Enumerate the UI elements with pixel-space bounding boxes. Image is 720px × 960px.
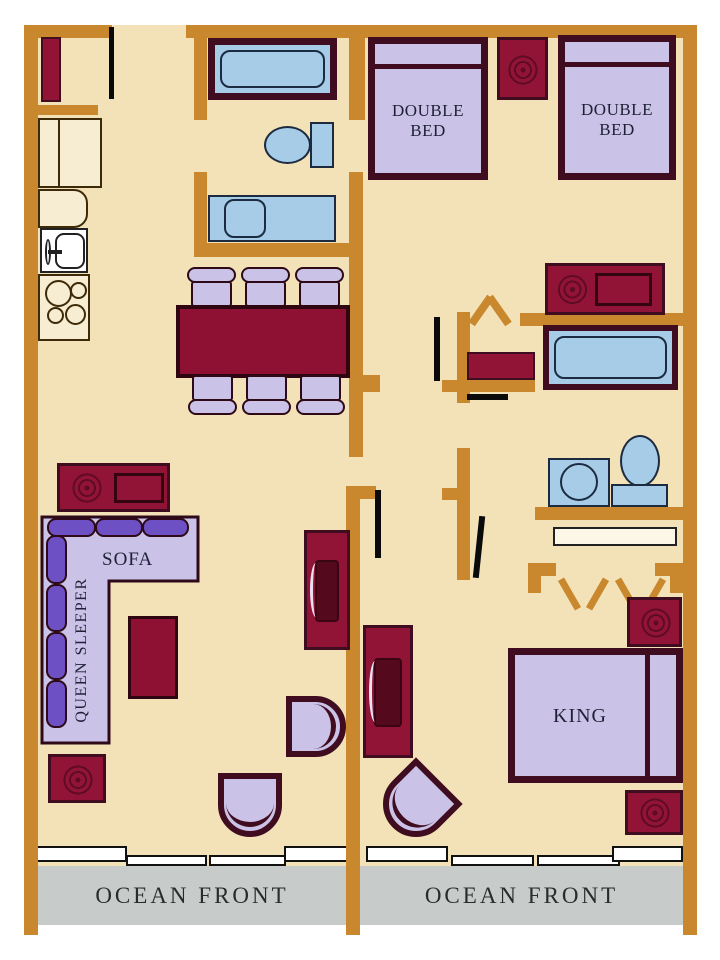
sofa-cushion xyxy=(96,519,142,536)
closet-track xyxy=(467,394,508,400)
wall-hall-vertical xyxy=(457,448,470,580)
king-bed-label: KING xyxy=(553,704,607,728)
coffee-table xyxy=(128,616,178,699)
nightstand xyxy=(625,790,683,835)
dining-chair-seat xyxy=(245,281,286,307)
dining-chair-back xyxy=(242,399,291,415)
end-table xyxy=(48,754,106,803)
window xyxy=(366,846,448,862)
balcony-left-label: OCEAN FRONT xyxy=(95,883,288,909)
lamp-icon xyxy=(641,608,671,638)
vanity-1-sink xyxy=(224,199,266,238)
kitchen-counter xyxy=(38,189,88,228)
tub-chair xyxy=(218,773,282,837)
vanity-1 xyxy=(208,195,336,242)
double-bed-2-label: DOUBLE BED xyxy=(577,100,657,141)
dining-table xyxy=(176,305,350,378)
king-bed: KING xyxy=(508,648,683,783)
double-bed-1: DOUBLE BED xyxy=(368,37,488,180)
bathtub-2-basin xyxy=(554,336,667,379)
lounge-chair-highlight xyxy=(369,661,381,722)
dining-chair-seat xyxy=(191,281,232,307)
dining-chair-seat xyxy=(246,375,287,401)
refrigerator xyxy=(38,118,102,188)
entry-closet-shelf xyxy=(41,37,61,102)
burner-icon xyxy=(47,307,64,324)
toilet-1-tank xyxy=(310,122,334,168)
tub-chair xyxy=(286,696,346,757)
tub-chair-arc xyxy=(282,704,336,749)
balcony-right-label: OCEAN FRONT xyxy=(425,883,618,909)
bathroom-shelf xyxy=(553,527,677,546)
sofa-cushion xyxy=(47,681,66,727)
wall-bath2-stub-left-v xyxy=(528,563,541,593)
faucet-bar xyxy=(48,250,62,254)
wall-bath1-left-upper xyxy=(194,38,207,120)
wall-top-left xyxy=(24,25,112,38)
lounge-chair xyxy=(363,625,413,758)
lounge-chair xyxy=(304,530,350,650)
burner-icon xyxy=(65,304,86,325)
stove xyxy=(38,274,90,341)
bathtub-1 xyxy=(208,38,337,100)
sofa-label: SOFA xyxy=(102,549,153,571)
window xyxy=(284,846,352,862)
lamp-icon xyxy=(71,472,103,504)
window xyxy=(25,846,127,862)
wall-closet-bottom xyxy=(442,380,535,392)
tv-icon xyxy=(595,273,652,306)
window xyxy=(209,855,286,866)
double-bed-2: DOUBLE BED xyxy=(558,35,676,180)
floor-plan: OCEAN FRONT OCEAN FRONT xyxy=(0,0,720,960)
wall-divider-upper-a xyxy=(349,25,365,120)
nightstand xyxy=(627,597,682,647)
toilet-2-tank xyxy=(611,484,668,507)
refrigerator-divider xyxy=(58,120,60,186)
dining-chair-back xyxy=(188,399,237,415)
window xyxy=(126,855,207,866)
sofa-cushion xyxy=(47,536,66,583)
dining-chair-back xyxy=(296,399,345,415)
wall-bath2-counter xyxy=(535,507,683,520)
dining-chair-seat xyxy=(192,375,233,401)
bathtub-2 xyxy=(543,325,678,390)
living-room-door xyxy=(375,490,381,558)
lamp-icon xyxy=(506,53,540,87)
closet-door xyxy=(434,317,440,381)
lounge-chair-highlight xyxy=(310,563,322,618)
nightstand xyxy=(497,37,548,100)
toilet-1-bowl xyxy=(264,126,311,164)
kitchen-sink xyxy=(40,228,88,273)
toilet-2-bowl xyxy=(620,435,660,487)
dresser xyxy=(545,263,665,315)
tv-icon xyxy=(114,473,164,503)
queen-sleeper-label: QUEEN SLEEPER xyxy=(73,554,95,746)
window xyxy=(451,855,534,866)
window xyxy=(612,846,683,862)
double-bed-1-label: DOUBLE BED xyxy=(388,101,468,142)
burner-icon xyxy=(70,282,87,299)
window xyxy=(537,855,620,866)
bed-pillow xyxy=(645,655,676,776)
balcony-left: OCEAN FRONT xyxy=(38,866,346,925)
vanity-2-basin xyxy=(560,463,598,501)
entry-door xyxy=(109,27,114,99)
bathtub-1-basin xyxy=(220,50,325,88)
sofa-cushion xyxy=(47,585,66,631)
wall-right-outer xyxy=(683,25,697,935)
lamp-icon xyxy=(62,764,94,796)
sofa-cushion xyxy=(47,633,66,679)
balcony-right: OCEAN FRONT xyxy=(360,866,683,925)
tub-chair-arc xyxy=(226,769,274,827)
wall-bath1-bottom xyxy=(194,243,357,257)
wall-divider-upper-b xyxy=(349,172,363,457)
vanity-2-sink xyxy=(548,458,610,507)
sofa-cushion xyxy=(48,519,95,536)
lamp-icon xyxy=(557,274,588,305)
sofa-cushion xyxy=(143,519,188,536)
tv-console xyxy=(57,463,170,512)
wall-entry-closet xyxy=(36,105,98,115)
wall-hall-stub xyxy=(442,488,457,500)
burner-icon xyxy=(45,280,72,307)
wall-dining-stub xyxy=(363,375,380,392)
wall-divider-stub xyxy=(360,486,376,499)
wall-left-outer xyxy=(24,25,38,935)
bed-pillow xyxy=(565,42,669,67)
wall-bath2-stub-right-v xyxy=(670,563,683,593)
dining-chair-seat xyxy=(300,375,341,401)
closet-shelf xyxy=(467,352,535,380)
bed-pillow xyxy=(375,44,481,69)
lamp-icon xyxy=(640,798,670,828)
dining-chair-seat xyxy=(299,281,340,307)
